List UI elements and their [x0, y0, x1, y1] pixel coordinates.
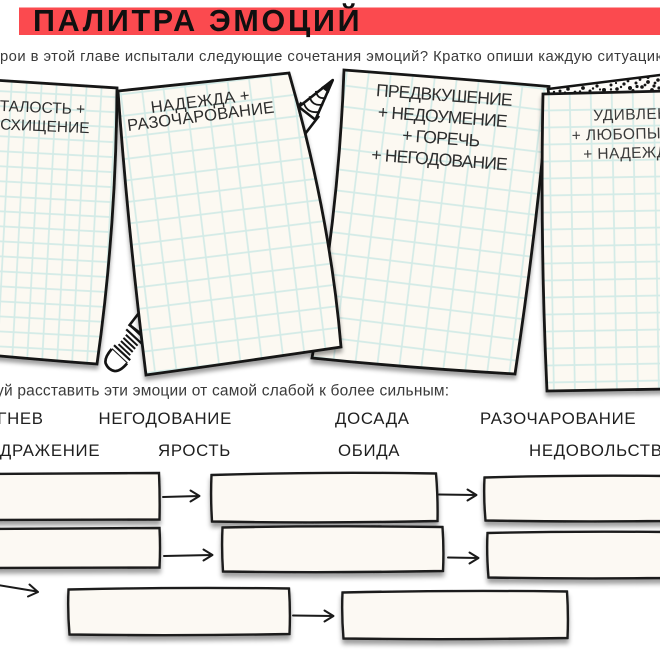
- svg-text:Герои в этой главе испытали сл: Герои в этой главе испытали следующие со…: [0, 49, 660, 65]
- svg-text:+ ЛЮБОПЫТСТВО: + ЛЮБОПЫТСТВО: [572, 124, 660, 145]
- svg-text:ОБИДА: ОБИДА: [338, 441, 400, 460]
- svg-text:НЕГОДОВАНИЕ: НЕГОДОВАНИЕ: [99, 409, 232, 428]
- svg-text:ДОСАДА: ДОСАДА: [335, 409, 410, 428]
- svg-text:ПАЛИТРА ЭМОЦИЙ: ПАЛИТРА ЭМОЦИЙ: [33, 2, 362, 38]
- svg-text:УСТАЛОСТЬ +: УСТАЛОСТЬ +: [0, 97, 86, 118]
- svg-text:УДИВЛЕНИЕ: УДИВЛЕНИЕ: [593, 105, 660, 125]
- svg-text:НЕДОВОЛЬСТВО: НЕДОВОЛЬСТВО: [529, 441, 660, 460]
- svg-text:ГНЕВ: ГНЕВ: [0, 409, 44, 428]
- svg-text:РАЗДРАЖЕНИЕ: РАЗДРАЖЕНИЕ: [0, 441, 100, 460]
- svg-text:уй расставить эти эмоции от са: уй расставить эти эмоции от самой слабой…: [0, 383, 449, 400]
- svg-text:РАЗОЧАРОВАНИЕ: РАЗОЧАРОВАНИЕ: [480, 409, 636, 428]
- svg-text:ЯРОСТЬ: ЯРОСТЬ: [158, 441, 231, 460]
- svg-text:+ НАДЕЖДА: + НАДЕЖДА: [583, 144, 660, 163]
- svg-text:ВОСХИЩЕНИЕ: ВОСХИЩЕНИЕ: [0, 116, 90, 138]
